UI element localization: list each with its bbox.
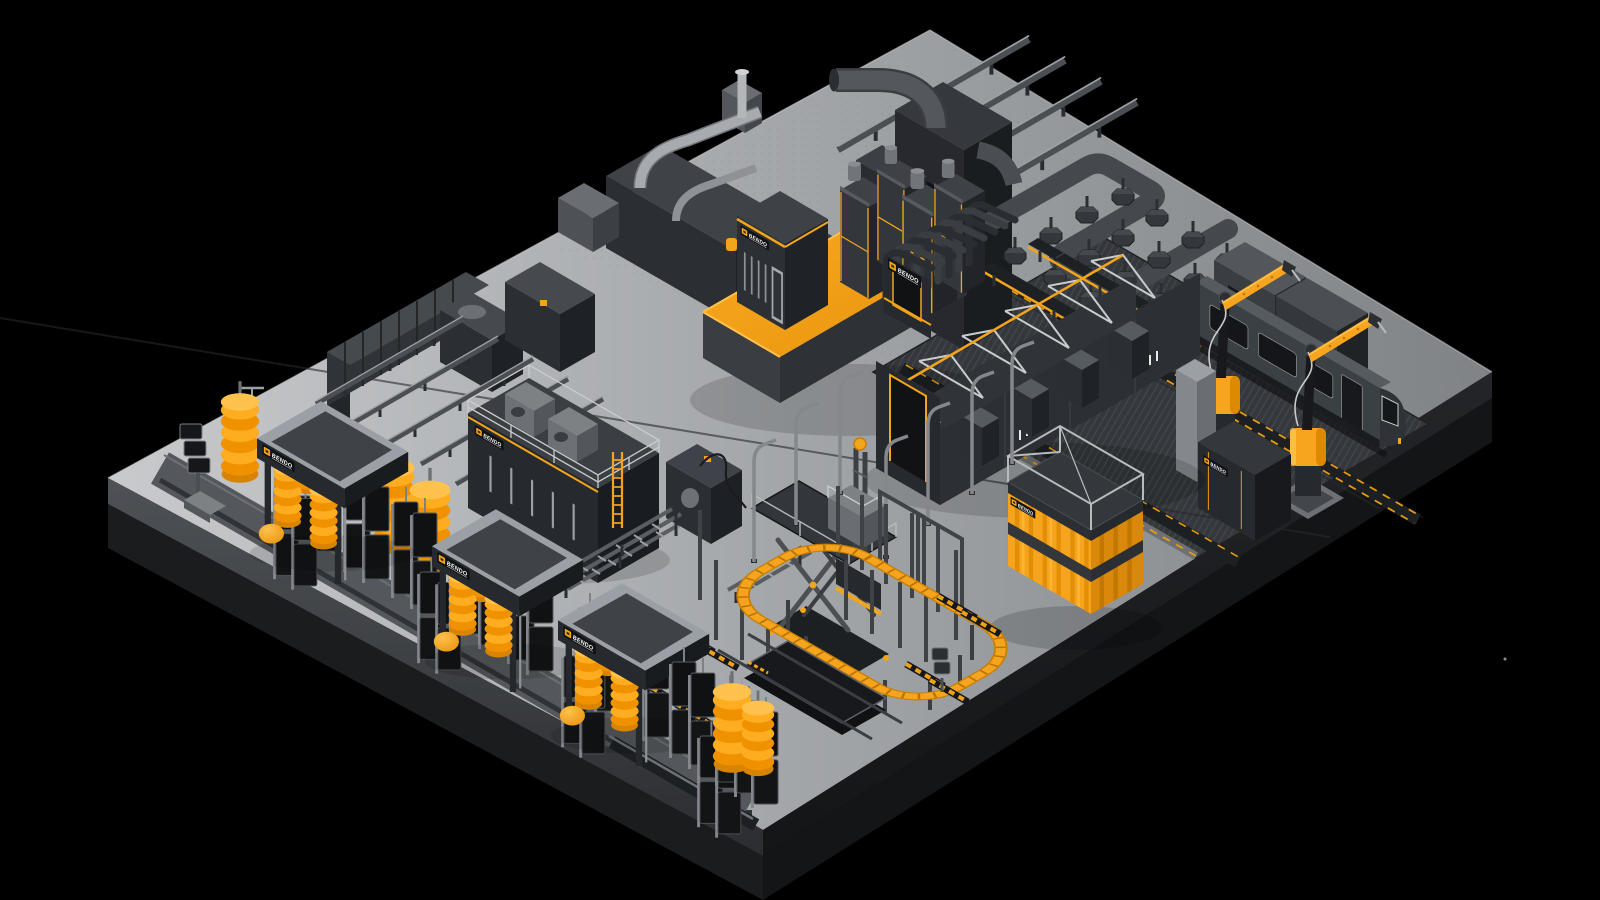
factory-floor-illustration: BENDO: [0, 0, 1600, 900]
control-cabin-icon: [737, 191, 828, 330]
floor-speck: [1504, 658, 1507, 661]
